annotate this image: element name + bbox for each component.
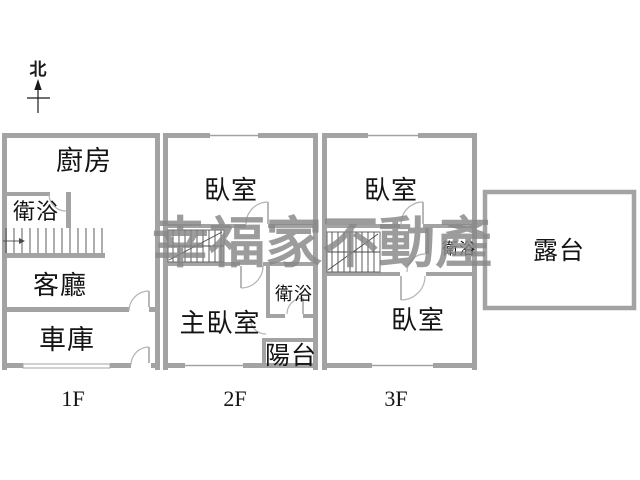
terrace: 露台 <box>485 192 634 308</box>
floor-plan-image: 北 <box>0 0 640 480</box>
north-label: 北 <box>30 60 47 79</box>
garage-door <box>23 364 110 368</box>
room-label-garage: 車庫 <box>39 325 95 355</box>
floor-label-3f: 3F <box>384 386 407 411</box>
room-label-bedroom-3f-back: 臥室 <box>391 306 445 335</box>
agency-watermark: 幸福家不動產 <box>152 212 492 274</box>
room-label-terrace: 露台 <box>533 237 585 265</box>
floor-label-2f: 2F <box>223 386 246 411</box>
north-indicator: 北 <box>27 60 50 113</box>
room-label-bedroom-3f-front: 臥室 <box>364 176 418 205</box>
room-label-bathroom-1f: 衛浴 <box>13 199 59 224</box>
room-label-balcony: 陽台 <box>265 342 317 370</box>
stairs-1f <box>3 228 102 253</box>
unit-1f: 廚房 衛浴 客廳 車庫 1F <box>2 133 160 411</box>
room-label-kitchen: 廚房 <box>56 146 112 176</box>
room-label-bedroom-2f: 臥室 <box>204 176 258 205</box>
floor-label-1f: 1F <box>61 386 84 411</box>
floor-plan-drawing: 北 <box>0 0 640 480</box>
north-arrow-icon <box>27 79 50 113</box>
room-label-living-room: 客廳 <box>33 271 87 300</box>
room-label-bathroom-2f: 衛浴 <box>275 284 313 304</box>
room-label-master-bedroom: 主臥室 <box>179 309 260 338</box>
